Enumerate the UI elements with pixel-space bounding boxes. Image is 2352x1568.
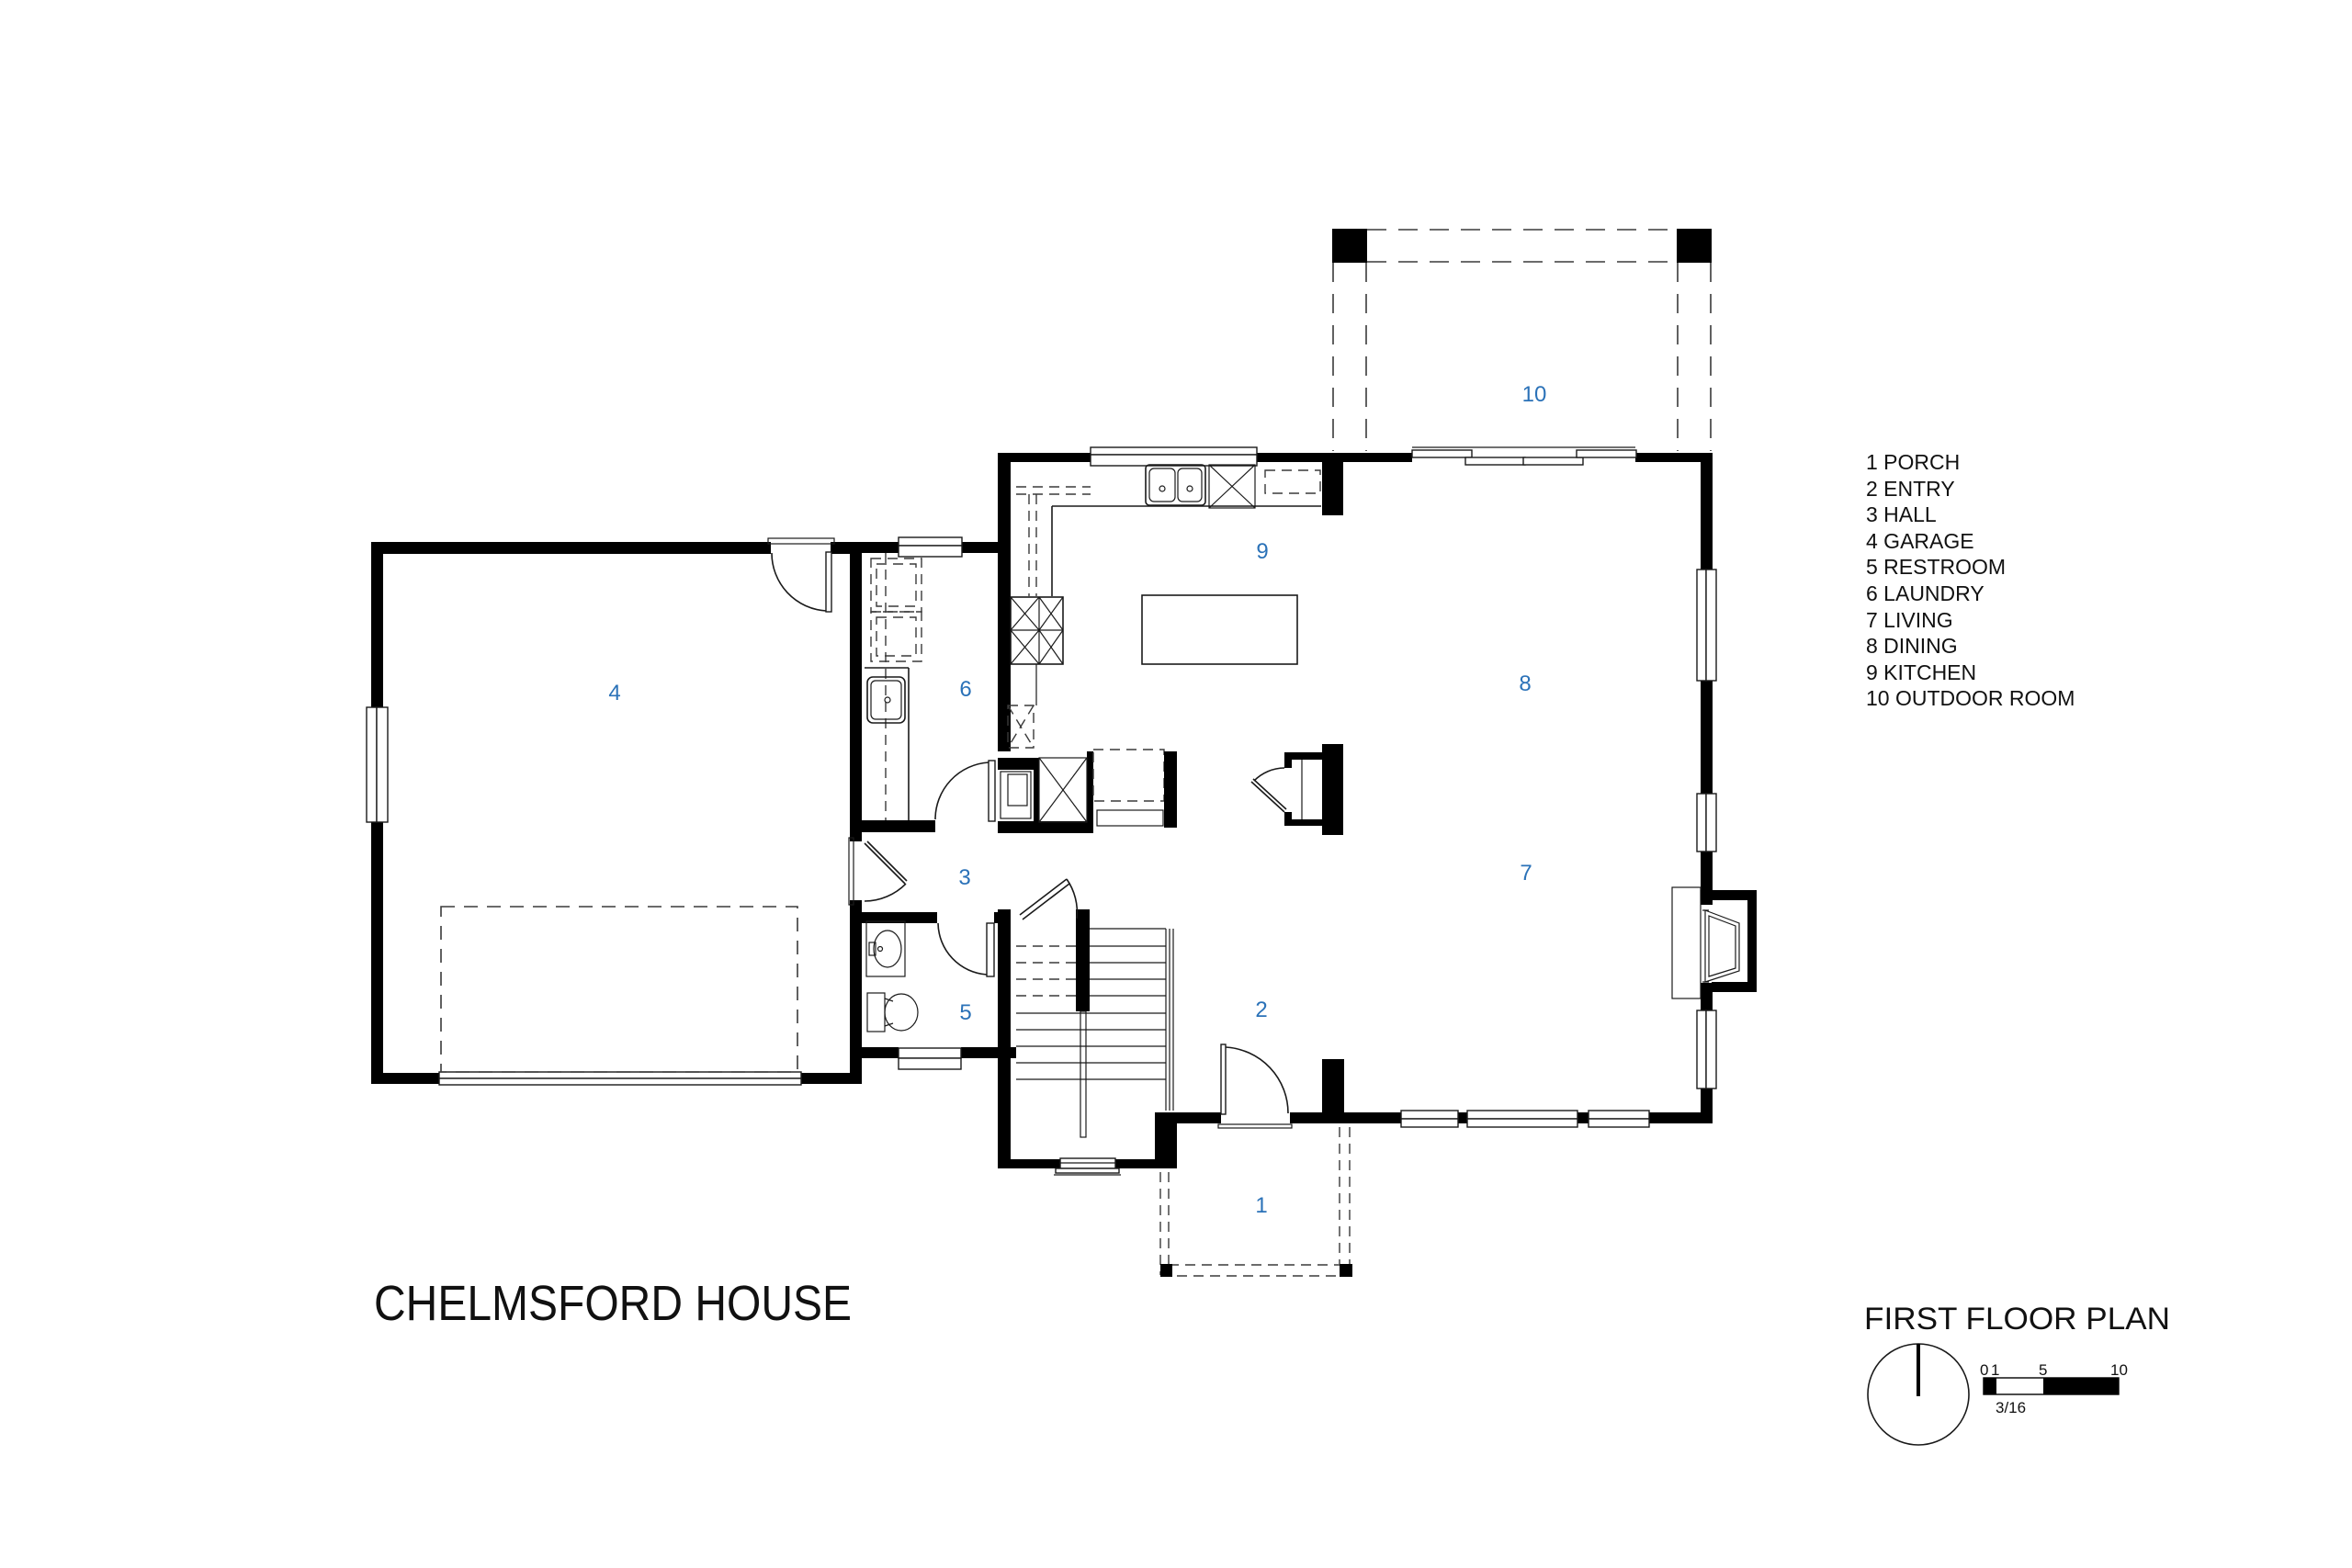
svg-text:1: 1 xyxy=(1991,1361,1999,1379)
svg-text:9 KITCHEN: 9 KITCHEN xyxy=(1866,660,1976,684)
svg-text:5 RESTROOM: 5 RESTROOM xyxy=(1866,555,2006,579)
svg-text:8: 8 xyxy=(1519,671,1531,696)
svg-text:5: 5 xyxy=(2039,1361,2047,1379)
svg-text:10: 10 xyxy=(2110,1361,2128,1379)
svg-text:9: 9 xyxy=(1256,539,1268,564)
svg-text:4: 4 xyxy=(608,681,620,705)
svg-text:6: 6 xyxy=(959,677,971,702)
svg-text:8 DINING: 8 DINING xyxy=(1866,634,1958,658)
svg-text:CHELMSFORD HOUSE: CHELMSFORD HOUSE xyxy=(374,1276,852,1331)
svg-text:2: 2 xyxy=(1255,998,1267,1022)
svg-text:7: 7 xyxy=(1520,861,1532,886)
svg-text:1 PORCH: 1 PORCH xyxy=(1866,450,1960,474)
svg-text:4 GARAGE: 4 GARAGE xyxy=(1866,529,1974,553)
svg-text:3/16: 3/16 xyxy=(1996,1399,2026,1416)
svg-text:FIRST FLOOR PLAN: FIRST FLOOR PLAN xyxy=(1864,1302,2170,1337)
svg-text:0: 0 xyxy=(1980,1361,1988,1379)
svg-text:3 HALL: 3 HALL xyxy=(1866,502,1937,526)
svg-text:5: 5 xyxy=(959,1000,971,1025)
svg-text:6 LAUNDRY: 6 LAUNDRY xyxy=(1866,581,1984,605)
svg-text:10 OUTDOOR ROOM: 10 OUTDOOR ROOM xyxy=(1866,686,2075,710)
svg-text:3: 3 xyxy=(958,865,970,890)
svg-text:2 ENTRY: 2 ENTRY xyxy=(1866,477,1955,501)
svg-text:1: 1 xyxy=(1255,1193,1267,1218)
svg-text:7 LIVING: 7 LIVING xyxy=(1866,608,1953,632)
svg-text:10: 10 xyxy=(1522,382,1547,407)
